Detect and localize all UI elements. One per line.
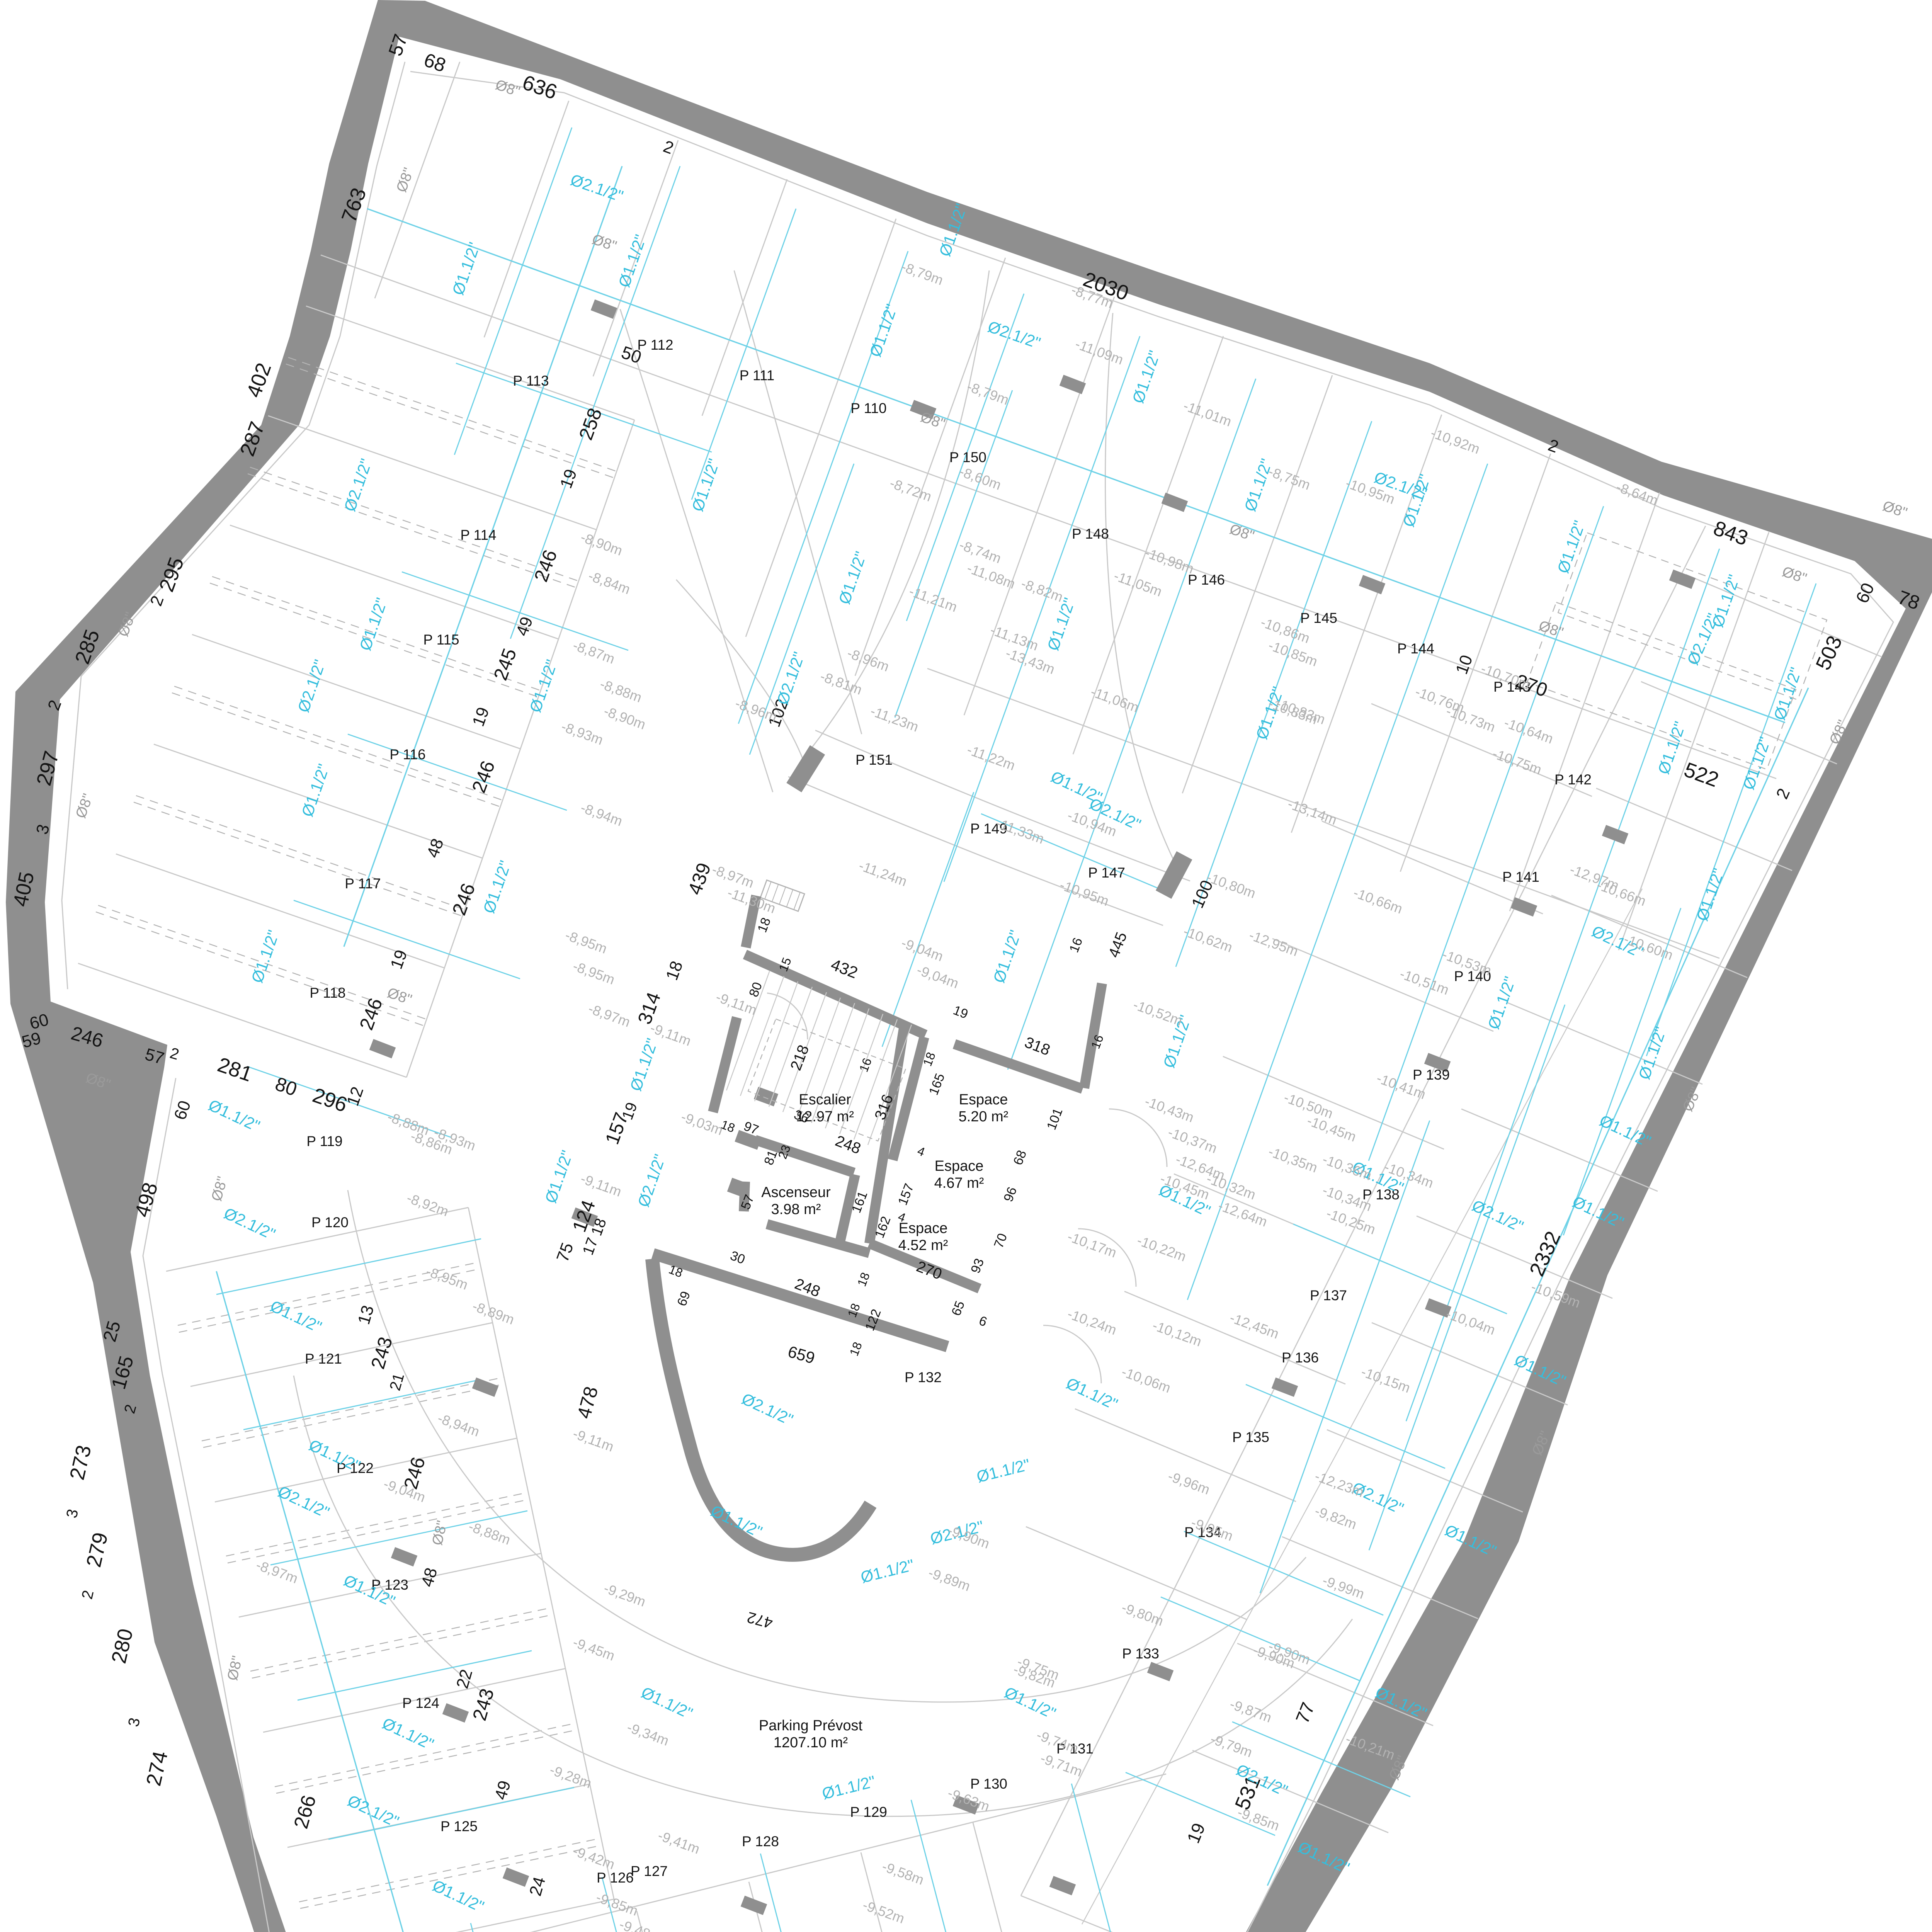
svg-text:Ø8": Ø8" — [493, 77, 522, 100]
svg-text:-10,43m: -10,43m — [1143, 1093, 1196, 1126]
svg-text:-9,85m: -9,85m — [1235, 1804, 1281, 1834]
svg-text:Ø2.1/2": Ø2.1/2" — [340, 456, 375, 514]
svg-text:Ø1.1/2": Ø1.1/2" — [206, 1096, 263, 1135]
svg-text:P 125: P 125 — [440, 1818, 478, 1834]
svg-text:318: 318 — [1022, 1034, 1053, 1059]
svg-text:Parking Prévost: Parking Prévost — [759, 1718, 863, 1734]
svg-text:P 139: P 139 — [1413, 1067, 1450, 1083]
svg-text:Ø8": Ø8" — [73, 792, 96, 821]
svg-text:Ø1.1/2": Ø1.1/2" — [615, 232, 650, 290]
svg-text:16: 16 — [1066, 936, 1085, 955]
svg-text:246: 246 — [355, 995, 386, 1033]
svg-text:659: 659 — [786, 1342, 817, 1367]
svg-text:-10,98m: -10,98m — [1143, 544, 1196, 577]
svg-text:-8,93m: -8,93m — [559, 718, 605, 748]
svg-text:P 118: P 118 — [310, 985, 345, 1001]
svg-text:P 148: P 148 — [1072, 526, 1109, 542]
svg-text:Ø2.1/2": Ø2.1/2" — [634, 1152, 669, 1209]
svg-text:18: 18 — [755, 916, 774, 935]
svg-text:-10,76m: -10,76m — [1413, 684, 1466, 716]
svg-text:Espace: Espace — [935, 1158, 984, 1174]
svg-text:Ø2.1/2": Ø2.1/2" — [1684, 611, 1722, 668]
svg-text:P 115: P 115 — [423, 632, 459, 648]
svg-text:-9,99m: -9,99m — [1320, 1572, 1366, 1602]
svg-text:19: 19 — [556, 467, 581, 491]
svg-text:P 136: P 136 — [1282, 1350, 1319, 1366]
svg-text:Ø1.1/2": Ø1.1/2" — [430, 1876, 487, 1916]
svg-text:3: 3 — [125, 1716, 143, 1728]
svg-text:-9,03m: -9,03m — [679, 1109, 725, 1138]
svg-text:17: 17 — [580, 1235, 602, 1257]
svg-text:Ø1.1/2": Ø1.1/2" — [1241, 456, 1276, 514]
svg-text:-8,90m: -8,90m — [578, 529, 624, 559]
svg-text:-11,33m: -11,33m — [994, 815, 1046, 847]
svg-text:274: 274 — [142, 1749, 172, 1788]
svg-text:Ø1.1/2": Ø1.1/2" — [541, 1148, 576, 1206]
svg-text:-11,01m: -11,01m — [1181, 398, 1234, 430]
svg-text:-12,95m: -12,95m — [1247, 927, 1300, 959]
svg-text:Ø1.1/2": Ø1.1/2" — [1063, 1374, 1121, 1413]
svg-text:246: 246 — [448, 880, 479, 918]
svg-text:Ø1.1/2": Ø1.1/2" — [1693, 866, 1728, 923]
svg-text:Ø1.1/2": Ø1.1/2" — [859, 1556, 916, 1587]
svg-text:2: 2 — [168, 1044, 181, 1063]
svg-text:Ø8": Ø8" — [429, 1519, 451, 1547]
svg-text:-10,36m: -10,36m — [1320, 1151, 1374, 1184]
svg-text:-8,88m: -8,88m — [466, 1518, 512, 1548]
svg-text:-8,74m: -8,74m — [957, 537, 1003, 566]
svg-text:Ø2.1/2": Ø2.1/2" — [773, 650, 808, 707]
svg-text:2: 2 — [146, 593, 167, 609]
svg-text:-10,92m: -10,92m — [1429, 425, 1482, 457]
svg-text:-8,88m: -8,88m — [598, 676, 644, 706]
svg-text:-8,94m: -8,94m — [578, 799, 624, 829]
svg-text:Ascenseur: Ascenseur — [761, 1184, 831, 1201]
svg-text:281: 281 — [214, 1053, 255, 1086]
svg-text:Ø8": Ø8" — [590, 231, 619, 255]
svg-text:2332: 2332 — [1525, 1228, 1565, 1280]
svg-text:-10,75m: -10,75m — [1490, 745, 1544, 778]
svg-text:-9,28m: -9,28m — [548, 1762, 594, 1791]
svg-text:522: 522 — [1681, 758, 1722, 791]
svg-text:-10,15m: -10,15m — [1359, 1364, 1412, 1396]
svg-text:60: 60 — [1852, 580, 1878, 606]
svg-text:Espace: Espace — [959, 1092, 1008, 1108]
svg-text:Ø1.1/2": Ø1.1/2" — [820, 1772, 877, 1803]
svg-text:P 130: P 130 — [970, 1776, 1007, 1792]
svg-text:280: 280 — [107, 1626, 138, 1665]
svg-text:30: 30 — [728, 1248, 747, 1267]
svg-text:68: 68 — [1010, 1148, 1029, 1167]
svg-text:P 121: P 121 — [305, 1351, 342, 1367]
svg-text:Ø1.1/2": Ø1.1/2" — [480, 858, 514, 916]
svg-text:P 150: P 150 — [949, 449, 986, 465]
svg-text:-8,82m: -8,82m — [1019, 575, 1065, 605]
svg-text:Ø1.1/2": Ø1.1/2" — [267, 1297, 325, 1336]
svg-text:3.98 m²: 3.98 m² — [771, 1201, 821, 1218]
svg-text:Espace: Espace — [899, 1220, 948, 1236]
svg-text:445: 445 — [1105, 930, 1130, 960]
svg-text:248: 248 — [833, 1132, 863, 1157]
svg-text:-8,79m: -8,79m — [899, 259, 945, 288]
svg-text:Ø1.1/2": Ø1.1/2" — [866, 302, 901, 359]
svg-text:19: 19 — [387, 947, 411, 972]
svg-text:Ø1.1/2": Ø1.1/2" — [1597, 1111, 1654, 1151]
svg-text:10: 10 — [1452, 653, 1476, 677]
svg-text:Ø8": Ø8" — [1881, 498, 1909, 521]
svg-text:-8,97m: -8,97m — [586, 1000, 632, 1030]
svg-text:-8,72m: -8,72m — [888, 475, 934, 505]
svg-text:-8,95m: -8,95m — [424, 1263, 470, 1293]
svg-text:P 128: P 128 — [742, 1833, 779, 1849]
svg-text:21: 21 — [386, 1371, 408, 1393]
svg-text:439: 439 — [684, 860, 715, 898]
svg-text:-8,84m: -8,84m — [586, 568, 632, 597]
svg-text:165: 165 — [926, 1071, 948, 1097]
svg-text:246: 246 — [530, 547, 561, 585]
svg-text:Ø1.1/2": Ø1.1/2" — [1044, 595, 1078, 653]
svg-text:Ø2.1/2": Ø2.1/2" — [275, 1482, 332, 1522]
svg-text:Ø1.1/2": Ø1.1/2" — [990, 928, 1024, 985]
svg-text:157: 157 — [895, 1182, 917, 1207]
svg-text:16: 16 — [857, 1056, 874, 1074]
svg-text:-10,51m: -10,51m — [1398, 966, 1451, 998]
svg-text:18: 18 — [662, 959, 687, 983]
svg-text:-11,06m: -11,06m — [1088, 684, 1141, 716]
svg-text:-8,79m: -8,79m — [965, 378, 1011, 408]
svg-text:P 124: P 124 — [402, 1695, 439, 1711]
svg-text:-11,22m: -11,22m — [965, 742, 1017, 774]
svg-text:18: 18 — [847, 1340, 865, 1358]
svg-text:4.52 m²: 4.52 m² — [898, 1237, 948, 1253]
svg-text:258: 258 — [575, 405, 606, 443]
svg-text:-8,92m: -8,92m — [405, 1190, 451, 1219]
svg-text:-10,22m: -10,22m — [1135, 1232, 1188, 1265]
svg-text:-10,80m: -10,80m — [1204, 869, 1258, 901]
svg-text:P 137: P 137 — [1310, 1287, 1347, 1303]
svg-text:19: 19 — [951, 1003, 970, 1022]
svg-text:3: 3 — [63, 1507, 82, 1520]
svg-text:-8,60m: -8,60m — [957, 463, 1003, 493]
svg-text:503: 503 — [1811, 632, 1847, 673]
svg-text:13: 13 — [354, 1303, 378, 1327]
svg-text:P 117: P 117 — [345, 876, 381, 891]
svg-text:Ø8": Ø8" — [208, 1175, 231, 1203]
svg-text:-9,11m: -9,11m — [578, 1170, 624, 1200]
svg-text:-10,35m: -10,35m — [1266, 1143, 1320, 1176]
svg-text:-9,41m: -9,41m — [656, 1827, 702, 1857]
svg-text:-10,62m: -10,62m — [1181, 923, 1235, 956]
svg-text:-8,95m: -8,95m — [571, 958, 617, 988]
svg-text:P 110: P 110 — [850, 400, 886, 416]
svg-text:P 113: P 113 — [513, 373, 549, 389]
svg-text:Ø1.1/2": Ø1.1/2" — [356, 595, 391, 653]
svg-text:-9,11m: -9,11m — [571, 1425, 616, 1455]
svg-text:1207.10 m²: 1207.10 m² — [774, 1735, 848, 1751]
svg-text:Ø1.1/2": Ø1.1/2" — [298, 762, 333, 819]
svg-text:12: 12 — [343, 1084, 367, 1108]
svg-text:60: 60 — [170, 1098, 194, 1122]
svg-text:18: 18 — [855, 1270, 872, 1288]
svg-text:Ø1.1/2": Ø1.1/2" — [1554, 518, 1588, 576]
svg-text:P 133: P 133 — [1122, 1646, 1159, 1662]
svg-text:6: 6 — [977, 1313, 989, 1330]
svg-text:266: 266 — [290, 1793, 321, 1831]
svg-text:-11,24m: -11,24m — [857, 857, 909, 889]
svg-text:Ø8": Ø8" — [1537, 617, 1565, 641]
svg-text:Ø2.1/2": Ø2.1/2" — [1469, 1196, 1526, 1236]
svg-text:19: 19 — [469, 705, 493, 729]
svg-text:-8,95m: -8,95m — [563, 927, 609, 957]
svg-text:Ø1.1/2": Ø1.1/2" — [688, 456, 723, 514]
svg-text:Ø1.1/2": Ø1.1/2" — [626, 1036, 661, 1094]
svg-text:93: 93 — [968, 1257, 987, 1276]
svg-text:-8,89m: -8,89m — [470, 1298, 516, 1328]
svg-text:Ø2.1/2": Ø2.1/2" — [739, 1389, 796, 1429]
svg-text:Ø1.1/2": Ø1.1/2" — [638, 1683, 696, 1723]
svg-text:-13,14m: -13,14m — [1286, 796, 1339, 828]
svg-text:P 135: P 135 — [1232, 1429, 1269, 1445]
svg-text:69: 69 — [674, 1289, 693, 1308]
svg-text:Ø1.1/2": Ø1.1/2" — [449, 240, 483, 298]
svg-text:-8,90m: -8,90m — [602, 703, 648, 733]
svg-text:Ø1.1/2": Ø1.1/2" — [975, 1455, 1032, 1486]
svg-text:Ø1.1/2": Ø1.1/2" — [1129, 348, 1163, 406]
svg-text:77: 77 — [1292, 1700, 1319, 1726]
svg-text:P 145: P 145 — [1300, 610, 1337, 626]
svg-text:96: 96 — [1001, 1185, 1020, 1204]
svg-text:P 142: P 142 — [1554, 772, 1592, 787]
svg-text:-11,09m: -11,09m — [1073, 336, 1126, 368]
svg-text:P 144: P 144 — [1397, 641, 1434, 656]
svg-text:2: 2 — [1772, 786, 1794, 802]
svg-text:P 147: P 147 — [1088, 865, 1125, 881]
svg-text:65: 65 — [949, 1299, 968, 1318]
svg-text:-9,96m: -9,96m — [1166, 1468, 1212, 1498]
svg-text:-10,17m: -10,17m — [1065, 1228, 1119, 1261]
svg-text:-8,81m: -8,81m — [818, 668, 864, 698]
svg-text:68: 68 — [421, 49, 449, 76]
svg-text:-8,87m: -8,87m — [571, 637, 617, 667]
svg-text:P 126: P 126 — [597, 1870, 634, 1886]
svg-text:-10,95m: -10,95m — [1058, 877, 1111, 909]
svg-text:472: 472 — [745, 1609, 775, 1632]
svg-text:478: 478 — [573, 1384, 602, 1421]
svg-text:Ø1.1/2": Ø1.1/2" — [379, 1714, 437, 1753]
svg-text:-8,75m: -8,75m — [1266, 463, 1312, 493]
svg-text:-9,34m: -9,34m — [625, 1719, 671, 1749]
svg-text:-10,64m: -10,64m — [1502, 714, 1555, 747]
svg-text:-10,12m: -10,12m — [1150, 1317, 1204, 1350]
svg-text:432: 432 — [828, 955, 860, 982]
svg-text:-9,04m: -9,04m — [899, 935, 945, 964]
svg-text:-8,94m: -8,94m — [435, 1410, 481, 1440]
svg-text:P 132: P 132 — [905, 1369, 942, 1385]
svg-text:-11,08m: -11,08m — [965, 560, 1017, 592]
svg-text:-9,89m: -9,89m — [926, 1565, 972, 1594]
svg-text:48: 48 — [418, 1566, 441, 1589]
svg-text:-9,29m: -9,29m — [602, 1580, 648, 1610]
svg-text:-9,52m: -9,52m — [861, 1897, 906, 1927]
svg-text:Escalier: Escalier — [799, 1092, 851, 1108]
svg-text:Ø8": Ø8" — [1228, 521, 1256, 544]
svg-text:245: 245 — [489, 645, 520, 683]
svg-text:243: 243 — [468, 1686, 498, 1723]
svg-text:-10,37m: -10,37m — [1166, 1124, 1219, 1156]
svg-text:P 141: P 141 — [1502, 869, 1539, 885]
svg-text:P 129: P 129 — [850, 1804, 887, 1820]
svg-text:-9,82m: -9,82m — [1313, 1503, 1359, 1532]
svg-text:2: 2 — [661, 137, 676, 158]
svg-text:101: 101 — [1044, 1106, 1066, 1132]
svg-text:70: 70 — [991, 1231, 1010, 1250]
svg-text:-9,87m: -9,87m — [1228, 1696, 1274, 1726]
svg-text:Ø8": Ø8" — [224, 1654, 246, 1682]
svg-text:-12,23m: -12,23m — [1313, 1468, 1366, 1500]
svg-text:P 127: P 127 — [631, 1863, 668, 1879]
svg-text:Ø8": Ø8" — [918, 409, 947, 432]
svg-text:5.20 m²: 5.20 m² — [959, 1109, 1009, 1125]
svg-text:218: 218 — [787, 1043, 812, 1073]
svg-text:P 111: P 111 — [740, 367, 775, 383]
svg-text:-10,45m: -10,45m — [1305, 1112, 1358, 1145]
svg-text:48: 48 — [423, 836, 447, 861]
svg-text:314: 314 — [633, 989, 665, 1027]
svg-text:246: 246 — [468, 758, 499, 796]
svg-text:279: 279 — [82, 1530, 112, 1569]
svg-text:-10,52m: -10,52m — [1131, 997, 1184, 1029]
svg-text:2: 2 — [78, 1588, 97, 1601]
svg-text:-12,45m: -12,45m — [1228, 1310, 1281, 1342]
svg-text:-9,80m: -9,80m — [1119, 1599, 1165, 1629]
svg-text:4: 4 — [915, 1144, 927, 1159]
svg-text:-8,96m: -8,96m — [845, 645, 891, 675]
svg-text:P 146: P 146 — [1188, 572, 1225, 588]
svg-text:-8,97m: -8,97m — [254, 1557, 300, 1587]
svg-text:Ø2.1/2": Ø2.1/2" — [221, 1204, 278, 1243]
svg-text:Ø2.1/2": Ø2.1/2" — [568, 170, 626, 205]
svg-text:-11,23m: -11,23m — [868, 703, 921, 735]
svg-text:80: 80 — [746, 980, 765, 999]
svg-text:Ø2.1/2": Ø2.1/2" — [294, 657, 329, 715]
svg-text:-10,66m: -10,66m — [1351, 884, 1405, 917]
svg-text:-10,06m: -10,06m — [1119, 1364, 1173, 1396]
svg-text:-9,45m: -9,45m — [571, 1634, 617, 1664]
svg-text:-9,79m: -9,79m — [1208, 1731, 1254, 1760]
svg-text:-12,97m: -12,97m — [1568, 861, 1621, 894]
svg-text:-10,04m: -10,04m — [1444, 1306, 1497, 1338]
svg-text:-9,58m: -9,58m — [880, 1858, 926, 1888]
svg-text:19: 19 — [1183, 1820, 1209, 1846]
svg-text:Ø1.1/2": Ø1.1/2" — [306, 1436, 363, 1475]
svg-text:P 119: P 119 — [306, 1133, 342, 1149]
svg-text:-9,48m: -9,48m — [617, 1916, 663, 1932]
svg-text:Ø1.1/2": Ø1.1/2" — [835, 549, 870, 607]
svg-text:Ø1.1/2": Ø1.1/2" — [248, 928, 282, 985]
svg-text:P 151: P 151 — [855, 752, 893, 768]
svg-text:49: 49 — [491, 1779, 515, 1802]
svg-text:273: 273 — [65, 1443, 96, 1482]
svg-text:270: 270 — [914, 1258, 944, 1283]
svg-text:P 114: P 114 — [460, 527, 496, 543]
svg-text:75: 75 — [553, 1240, 577, 1265]
svg-text:-9,04m: -9,04m — [915, 962, 961, 992]
svg-text:Ø8": Ø8" — [385, 985, 414, 1008]
svg-text:402: 402 — [242, 360, 276, 400]
svg-text:Ø8": Ø8" — [1780, 563, 1809, 587]
svg-text:243: 243 — [367, 1334, 396, 1371]
svg-text:Ø1.1/2": Ø1.1/2" — [526, 657, 561, 715]
svg-text:24: 24 — [526, 1875, 549, 1898]
svg-text:4.67 m²: 4.67 m² — [934, 1175, 984, 1191]
svg-text:P 120: P 120 — [311, 1214, 349, 1230]
svg-text:P 116: P 116 — [389, 747, 425, 762]
